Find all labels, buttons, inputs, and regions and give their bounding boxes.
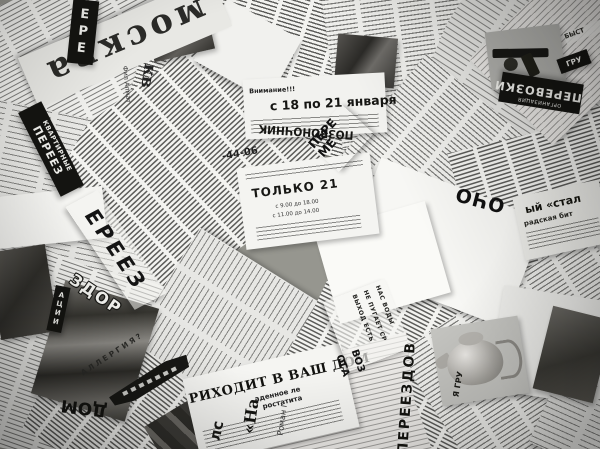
tolko21-ad-scrap: ТОЛЬКО 21 с 9.00 до 18.00 с 11.00 до 14.… <box>237 152 380 250</box>
label-dom: ДОМ <box>64 386 109 421</box>
gun-trigger-shape <box>503 57 518 71</box>
fineprint-lines <box>256 214 362 241</box>
gun-barrel-shape <box>492 48 548 58</box>
headline-tolko21: ТОЛЬКО 21 <box>251 176 339 201</box>
newspaper-collage-photo: москва ЕРЕ кв Фил Алмат Внимание!!! с 18… <box>0 0 600 449</box>
attention-label: Внимание!!! <box>249 85 295 95</box>
headline-date-range: с 18 по 21 января <box>270 92 397 114</box>
teapot-photo <box>430 316 529 407</box>
